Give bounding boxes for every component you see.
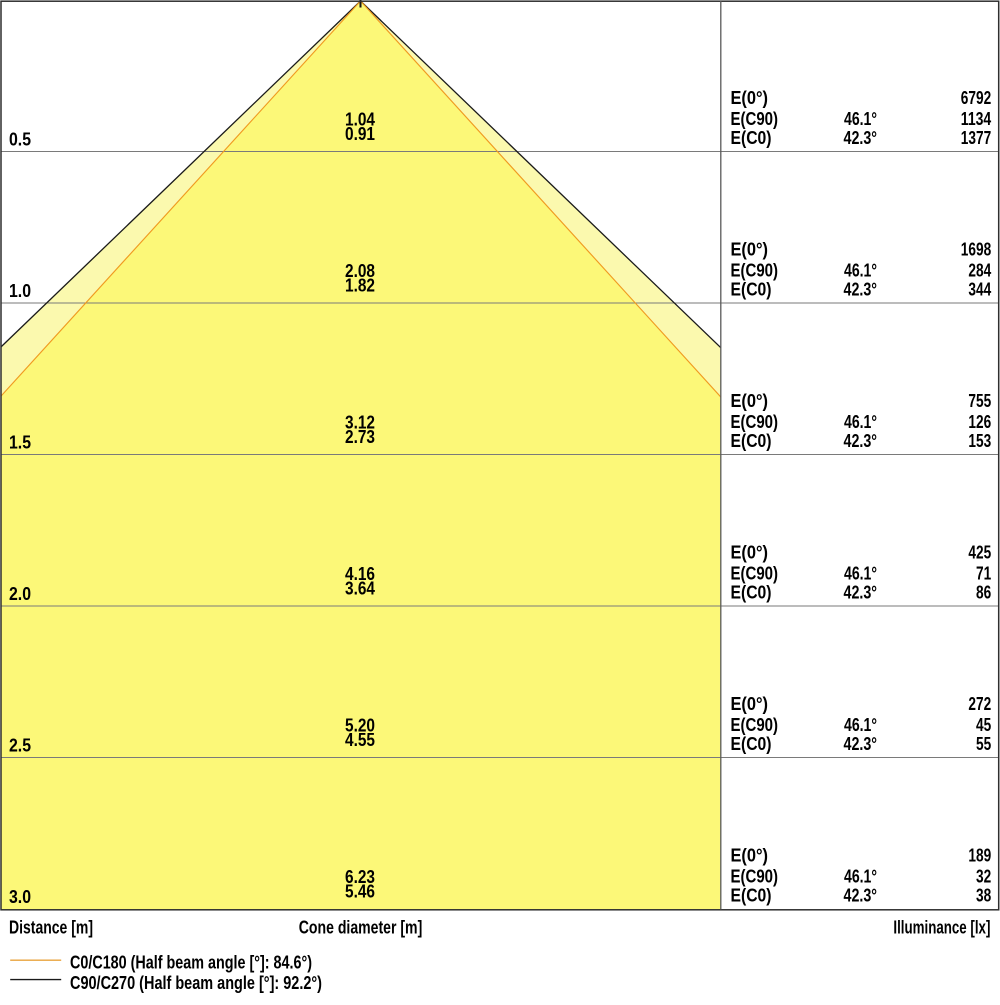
svg-text:46.1°: 46.1° — [844, 866, 877, 886]
svg-text:E(C0): E(C0) — [731, 583, 772, 603]
svg-text:2.5: 2.5 — [9, 736, 31, 756]
svg-text:71: 71 — [976, 563, 991, 583]
svg-text:46.1°: 46.1° — [844, 715, 877, 735]
svg-text:E(0°): E(0°) — [731, 694, 769, 714]
svg-text:Cone diameter [m]: Cone diameter [m] — [299, 918, 423, 938]
svg-text:46.1°: 46.1° — [844, 563, 877, 583]
svg-text:4.55: 4.55 — [345, 730, 375, 750]
svg-text:3.64: 3.64 — [345, 579, 375, 599]
svg-text:1134: 1134 — [961, 109, 991, 129]
svg-text:42.3°: 42.3° — [844, 280, 878, 300]
svg-text:272: 272 — [968, 694, 991, 714]
svg-text:1.5: 1.5 — [9, 433, 31, 453]
svg-text:6792: 6792 — [961, 88, 991, 108]
svg-text:E(C90): E(C90) — [731, 866, 779, 886]
svg-text:153: 153 — [968, 431, 991, 451]
svg-text:5.46: 5.46 — [345, 882, 375, 902]
svg-text:0.5: 0.5 — [9, 130, 31, 150]
svg-text:344: 344 — [968, 280, 991, 300]
svg-text:C0/C180 (Half beam angle [°]:: C0/C180 (Half beam angle [°]: 84.6°) — [70, 953, 312, 973]
svg-text:1698: 1698 — [961, 240, 991, 260]
svg-text:46.1°: 46.1° — [844, 109, 877, 129]
svg-text:Distance [m]: Distance [m] — [9, 918, 93, 938]
svg-text:1.82: 1.82 — [345, 276, 375, 296]
svg-text:E(0°): E(0°) — [731, 846, 769, 866]
svg-text:E(C90): E(C90) — [731, 563, 779, 583]
svg-text:425: 425 — [968, 543, 991, 563]
svg-text:42.3°: 42.3° — [844, 128, 878, 148]
svg-text:E(C0): E(C0) — [731, 886, 772, 906]
svg-text:38: 38 — [976, 886, 991, 906]
svg-text:E(C0): E(C0) — [731, 734, 772, 754]
svg-text:126: 126 — [968, 412, 991, 432]
svg-text:E(0°): E(0°) — [731, 240, 769, 260]
svg-text:E(0°): E(0°) — [731, 391, 769, 411]
svg-text:Illuminance [lx]: Illuminance [lx] — [893, 918, 990, 938]
svg-text:E(C0): E(C0) — [731, 280, 772, 300]
svg-text:46.1°: 46.1° — [844, 412, 877, 432]
svg-text:1377: 1377 — [961, 128, 991, 148]
svg-text:E(0°): E(0°) — [731, 88, 769, 108]
svg-text:42.3°: 42.3° — [844, 886, 878, 906]
svg-text:E(C90): E(C90) — [731, 260, 779, 280]
svg-text:3.0: 3.0 — [9, 887, 31, 907]
svg-text:E(C90): E(C90) — [731, 109, 779, 129]
svg-text:E(0°): E(0°) — [731, 543, 769, 563]
svg-text:755: 755 — [968, 391, 991, 411]
svg-text:42.3°: 42.3° — [844, 583, 878, 603]
svg-text:1.0: 1.0 — [9, 281, 31, 301]
svg-text:284: 284 — [968, 260, 991, 280]
svg-text:E(C90): E(C90) — [731, 715, 779, 735]
svg-text:45: 45 — [976, 715, 991, 735]
svg-text:32: 32 — [976, 866, 991, 886]
svg-text:55: 55 — [976, 734, 991, 754]
svg-text:2.73: 2.73 — [345, 427, 375, 447]
svg-text:E(C0): E(C0) — [731, 431, 772, 451]
svg-text:189: 189 — [968, 846, 991, 866]
svg-text:2.0: 2.0 — [9, 584, 31, 604]
svg-text:C90/C270 (Half beam angle [°]:: C90/C270 (Half beam angle [°]: 92.2°) — [70, 973, 322, 993]
svg-text:42.3°: 42.3° — [844, 734, 878, 754]
svg-text:46.1°: 46.1° — [844, 260, 877, 280]
svg-text:E(C0): E(C0) — [731, 128, 772, 148]
svg-text:86: 86 — [976, 583, 991, 603]
svg-text:E(C90): E(C90) — [731, 412, 779, 432]
svg-text:0.91: 0.91 — [345, 124, 375, 144]
svg-text:42.3°: 42.3° — [844, 431, 878, 451]
